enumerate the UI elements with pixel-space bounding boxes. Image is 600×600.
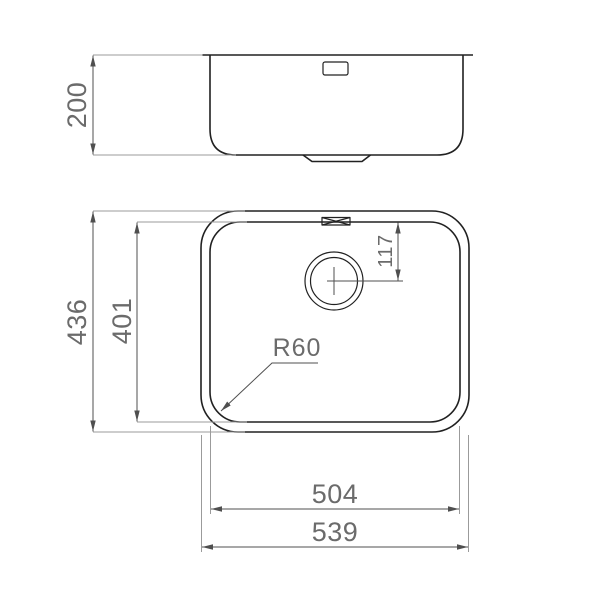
side-elevation-view: 200: [62, 55, 473, 162]
drawing-svg: 200 117 R60: [0, 0, 600, 600]
corner-radius-leader: [221, 363, 318, 411]
dim-label-bowl-depth: 401: [107, 298, 137, 345]
elevation-overflow-hole: [323, 62, 348, 75]
dim-label-bowl-width: 504: [312, 479, 359, 509]
elevation-bowl-outline: [210, 55, 463, 155]
dim-label-side-height: 200: [62, 82, 92, 129]
plan-rim-outline: [201, 211, 469, 432]
dim-label-overall-width: 539: [312, 517, 359, 547]
corner-radius-label: R60: [273, 334, 322, 362]
dim-label-overall-depth: 436: [62, 299, 92, 346]
dim-label-drain-offset: 117: [375, 234, 397, 267]
elevation-drain-boss: [303, 155, 371, 162]
plan-view: 117 R60 436 401 504 539: [62, 211, 469, 552]
technical-drawing: 200 117 R60: [0, 0, 600, 600]
